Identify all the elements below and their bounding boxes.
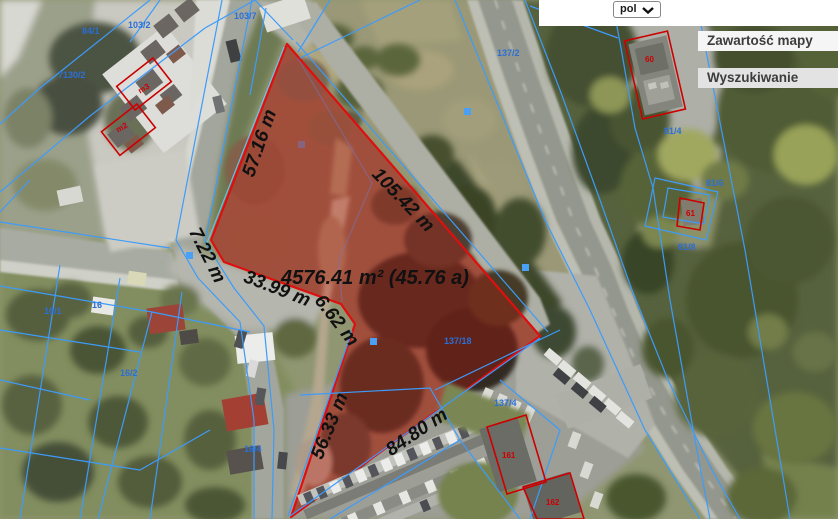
svg-text:16/1: 16/1 [44, 306, 62, 316]
svg-text:4576.41 m² (45.76 a): 4576.41 m² (45.76 a) [280, 267, 469, 289]
svg-text:7130/2: 7130/2 [58, 70, 86, 80]
svg-text:137/18: 137/18 [444, 336, 472, 346]
svg-text:161: 161 [502, 451, 516, 460]
svg-text:103/7: 103/7 [234, 11, 257, 21]
svg-text:162: 162 [546, 498, 560, 507]
svg-text:16: 16 [92, 300, 102, 310]
svg-text:81/4: 81/4 [664, 126, 682, 136]
svg-text:84/1: 84/1 [82, 26, 100, 36]
svg-text:61: 61 [686, 209, 695, 218]
svg-text:103/2: 103/2 [128, 20, 151, 30]
svg-text:137/4: 137/4 [494, 398, 517, 408]
svg-text:60: 60 [645, 55, 654, 64]
svg-text:81/8: 81/8 [678, 242, 696, 252]
svg-text:16/2: 16/2 [120, 368, 138, 378]
svg-text:137/2: 137/2 [497, 48, 520, 58]
svg-text:16/4: 16/4 [244, 444, 262, 454]
svg-text:81/6: 81/6 [706, 178, 724, 188]
